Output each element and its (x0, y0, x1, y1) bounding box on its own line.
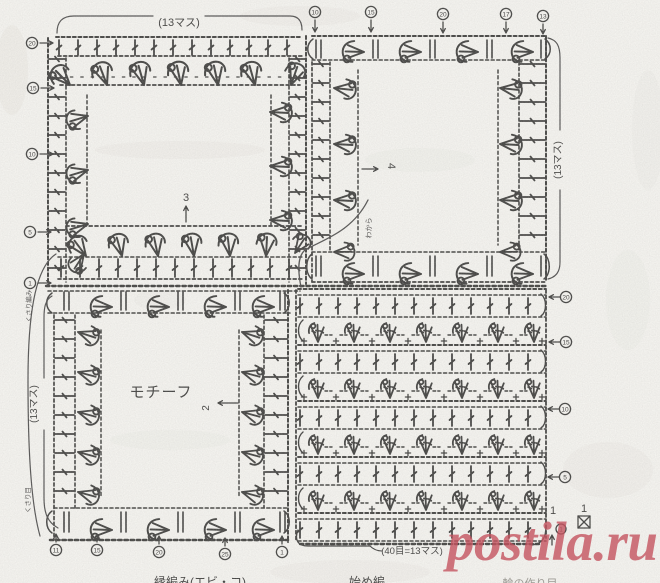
svg-text:11: 11 (53, 547, 60, 554)
svg-text:10: 10 (28, 151, 36, 158)
svg-text:20: 20 (155, 549, 163, 556)
svg-text:輪の作り目: 輪の作り目 (503, 576, 558, 583)
svg-text:2: 2 (201, 405, 212, 411)
svg-text:(13マス): (13マス) (553, 141, 564, 179)
svg-text:3: 3 (183, 192, 189, 204)
svg-text:わから: わから (365, 218, 373, 239)
svg-text:13: 13 (539, 13, 547, 20)
svg-text:15: 15 (93, 547, 101, 554)
svg-text:20: 20 (28, 40, 36, 47)
svg-text:(40目=13マス): (40目=13マス) (381, 546, 443, 557)
svg-text:5: 5 (563, 474, 567, 481)
svg-text:くさり編み: くさり編み (24, 289, 33, 322)
svg-text:20: 20 (439, 11, 447, 18)
svg-text:postila.ru: postila.ru (443, 511, 658, 572)
svg-text:モチーフ: モチーフ (129, 384, 192, 401)
svg-text:20: 20 (562, 294, 570, 301)
svg-text:縁編み(エビ・コ): 縁編み(エビ・コ) (154, 574, 246, 583)
svg-text:5: 5 (28, 229, 32, 236)
svg-text:10: 10 (311, 9, 319, 16)
svg-text:(13マス): (13マス) (29, 385, 40, 423)
svg-text:くさり目: くさり目 (24, 487, 32, 513)
svg-text:10: 10 (561, 406, 569, 413)
svg-text:25: 25 (221, 551, 229, 558)
svg-text:17: 17 (502, 11, 510, 18)
svg-text:15: 15 (367, 9, 375, 16)
svg-text:1: 1 (28, 280, 32, 287)
svg-text:15: 15 (29, 85, 37, 92)
svg-text:4: 4 (385, 163, 397, 169)
svg-text:1: 1 (280, 549, 284, 556)
svg-text:始め編: 始め編 (349, 574, 385, 583)
svg-text:(13マス): (13マス) (158, 17, 200, 29)
svg-text:15: 15 (562, 339, 570, 346)
